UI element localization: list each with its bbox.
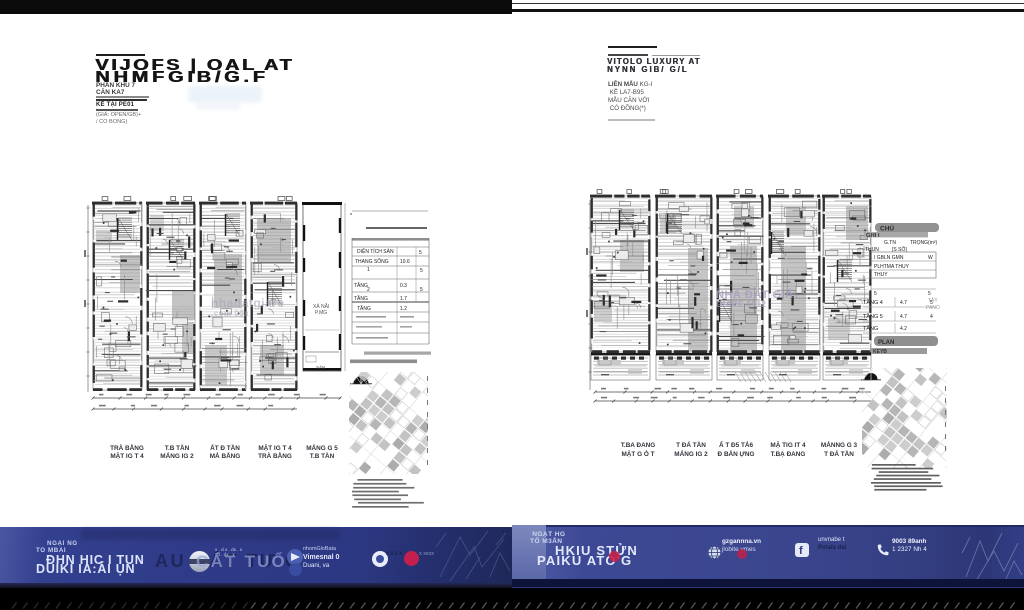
svg-text:DIỆN TÍCH SÀN: DIỆN TÍCH SÀN [357,247,394,255]
svg-text:5: 5 [420,287,423,293]
svg-text:G.TN: G.TN [884,240,896,246]
svg-text:2: 2 [367,287,370,293]
svg-text:4.2: 4.2 [900,326,907,332]
svg-text:TẦNG: TẦNG [863,325,878,332]
svg-text:PANO: PANO [926,305,940,311]
svg-text:I GBLN GMN: I GBLN GMN [874,255,904,261]
svg-text:TẦNG 5: TẦNG 5 [863,313,883,320]
svg-text:1.2: 1.2 [400,306,407,312]
svg-text:THUY: THUY [874,272,888,278]
svg-text:PLHTMA THUY: PLHTMA THUY [874,264,910,270]
svg-text:TẦNG: TẦNG [354,282,368,289]
svg-text:TRỌNG(m²): TRỌNG(m²) [910,240,938,246]
svg-text:5: 5 [928,291,931,297]
svg-text:XẢ NẮI: XẢ NẮI [313,302,329,310]
svg-text:0.3: 0.3 [400,283,407,289]
svg-text:1.7: 1.7 [400,296,407,302]
svg-text:4.7: 4.7 [900,314,907,320]
svg-text:4: 4 [930,314,933,320]
svg-text:W: W [928,255,933,261]
svg-text:4.7: 4.7 [900,300,907,306]
svg-text:SÂN: SÂN [316,364,325,370]
svg-text:5: 5 [420,268,423,274]
svg-text:TẦNG: TẦNG [354,295,368,302]
svg-text:KEYB: KEYB [873,349,887,355]
svg-text:THANG SỐNG: THANG SỐNG [355,258,389,265]
svg-text:5: 5 [419,250,422,256]
svg-text:10.6: 10.6 [400,259,410,265]
svg-text:TẦNG: TẦNG [357,305,371,312]
svg-text:P.MG: P.MG [315,310,327,316]
svg-text:GHI I: GHI I [866,233,880,239]
svg-text:TẦNG 4: TẦNG 4 [863,299,883,306]
svg-text:PLAN: PLAN [878,340,894,346]
svg-text:5: 5 [874,291,877,297]
svg-text:TÂY: TÂY [928,297,938,304]
svg-text:CHÚ: CHÚ [880,224,894,233]
svg-text:1: 1 [367,267,370,273]
